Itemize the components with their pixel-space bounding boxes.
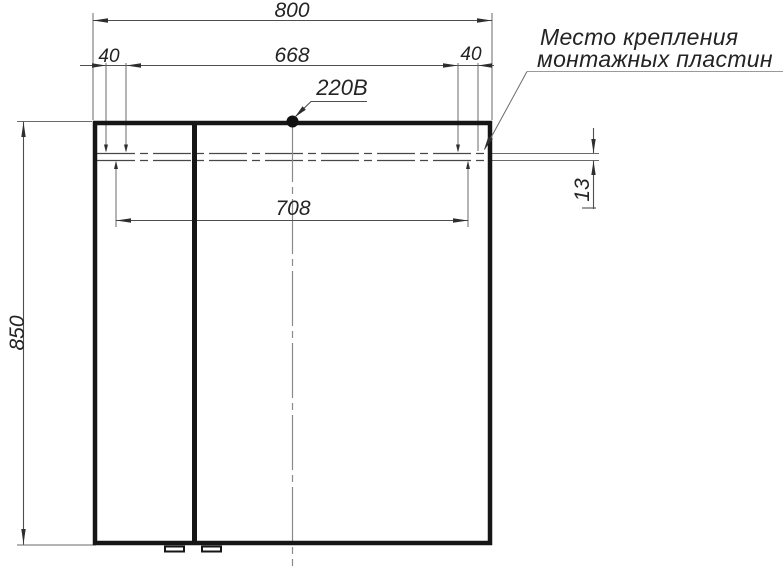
dim-label-40-left: 40 [98, 46, 120, 67]
cabinet-dimension-drawing: 800 40 668 40 708 [0, 0, 784, 566]
arrowhead [21, 529, 25, 544]
arrowhead [21, 122, 25, 137]
left-door-foot [165, 547, 184, 552]
dim-label-850: 850 [6, 315, 29, 350]
dim-label-668: 668 [274, 44, 309, 67]
arrowhead [591, 139, 595, 153]
leader-line [485, 72, 528, 150]
dim-label-800: 800 [274, 0, 309, 22]
arrowhead [591, 161, 595, 175]
arrowhead [93, 18, 108, 22]
technical-drawing-page: 800 40 668 40 708 [0, 0, 784, 566]
arrowhead [126, 63, 141, 67]
leader-line [295, 102, 367, 118]
power-label: 220В [315, 75, 367, 100]
dim-label-13: 13 [571, 178, 594, 202]
power-connection-dot [287, 116, 299, 128]
note-text-line2: монтажных пластин [537, 46, 773, 72]
right-door-foot [202, 547, 221, 552]
dim-label-708: 708 [275, 197, 310, 220]
dim-plate-height: 13 [571, 128, 596, 209]
arrowhead [443, 63, 458, 67]
dim-label-40-right: 40 [460, 44, 482, 65]
arrowhead [477, 18, 492, 22]
dim-overall-height: 850 [6, 122, 96, 546]
mounting-note-callout: Место крепления монтажных пластин [484, 24, 783, 150]
power-callout: 220В [287, 75, 368, 128]
